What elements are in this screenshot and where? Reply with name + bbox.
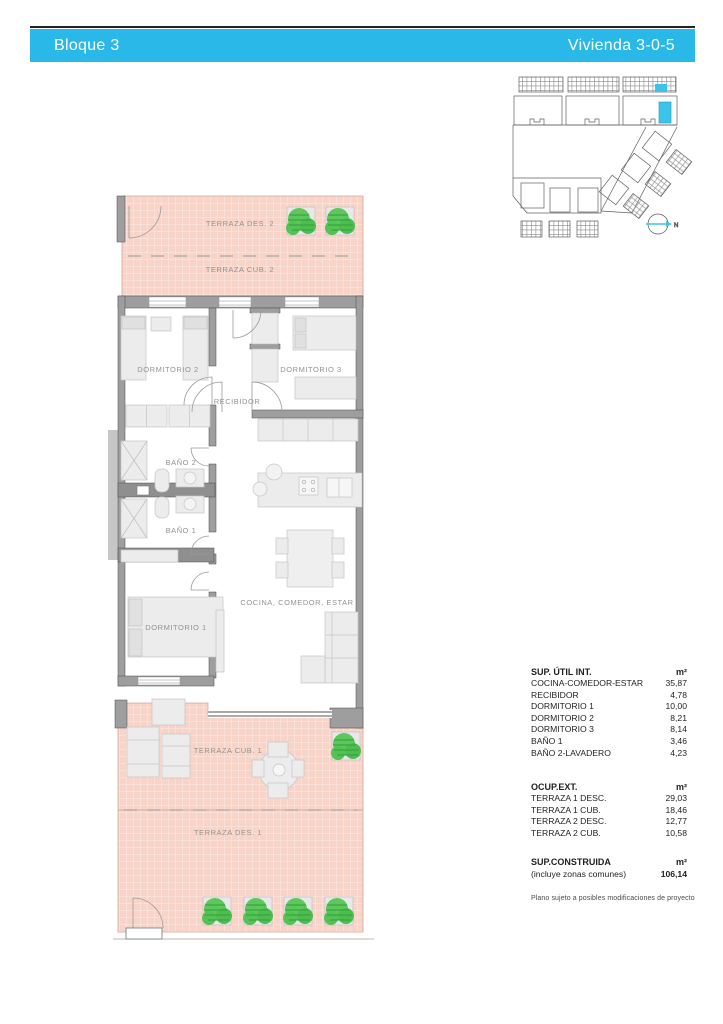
desk-dorm3 bbox=[295, 377, 356, 399]
site-building-row bbox=[513, 96, 677, 125]
plant-icon bbox=[286, 207, 316, 235]
area-label: TERRAZA 2 CUB. bbox=[531, 828, 601, 840]
nightstand bbox=[151, 317, 171, 331]
sink-bano1 bbox=[176, 496, 204, 513]
area-value: 4,78 bbox=[670, 690, 687, 702]
label-terraza-des-2: TERRAZA DES. 2 bbox=[206, 219, 274, 228]
area-label: BAÑO 1 bbox=[531, 736, 563, 748]
label-bano-1: BAÑO 1 bbox=[166, 526, 197, 535]
loungers bbox=[127, 727, 190, 778]
cooktop bbox=[299, 477, 318, 495]
label-dormitorio-3: DORMITORIO 3 bbox=[280, 365, 341, 374]
constructed-subtitle: (incluye zonas comunes) bbox=[531, 868, 626, 880]
area-label: DORMITORIO 1 bbox=[531, 701, 594, 713]
label-terraza-cub-1: TERRAZA CUB. 1 bbox=[194, 746, 263, 755]
area-row: DORMITORIO 28,21 bbox=[531, 713, 687, 725]
closet-dorm1 bbox=[121, 550, 178, 562]
constructed-total: 106,14 bbox=[661, 868, 687, 880]
area-row: TERRAZA 1 DESC.29,03 bbox=[531, 793, 687, 805]
exterior-unit: m² bbox=[676, 781, 687, 793]
interior-section-header: SUP. ÚTIL INT. m² bbox=[531, 666, 687, 678]
ottoman bbox=[301, 656, 325, 683]
site-plan: N bbox=[513, 77, 692, 237]
terrace-chair bbox=[152, 699, 185, 725]
kitchen-appliance bbox=[327, 478, 352, 497]
exterior-section-header: OCUP.EXT. m² bbox=[531, 781, 687, 793]
label-dormitorio-1: DORMITORIO 1 bbox=[145, 623, 206, 632]
area-value: 3,46 bbox=[670, 736, 687, 748]
shower-bano1 bbox=[121, 499, 147, 538]
area-row: TERRAZA 2 DESC.12,77 bbox=[531, 816, 687, 828]
area-value: 4,23 bbox=[670, 748, 687, 760]
apartment-plan: TERRAZA DES. 2 TERRAZA CUB. 2 DORMITORIO… bbox=[108, 196, 374, 939]
label-recibidor: RECIBIDOR bbox=[214, 397, 261, 406]
exterior-title: OCUP.EXT. bbox=[531, 781, 577, 793]
area-value: 8,14 bbox=[670, 724, 687, 736]
site-cluster-bottom-left bbox=[513, 178, 601, 213]
area-row: BAÑO 2-LAVADERO4,23 bbox=[531, 748, 687, 760]
area-label: TERRAZA 2 DESC. bbox=[531, 816, 606, 828]
bed-dorm3 bbox=[293, 316, 356, 350]
plant-icon bbox=[331, 732, 361, 760]
area-label: COCINA-COMEDOR-ESTAR bbox=[531, 678, 643, 690]
door-threshold bbox=[126, 928, 162, 939]
area-table: SUP. ÚTIL INT. m² COCINA-COMEDOR-ESTAR35… bbox=[531, 666, 687, 902]
kitchen-tall-units bbox=[258, 419, 358, 441]
plant-icon bbox=[324, 897, 354, 925]
area-label: DORMITORIO 3 bbox=[531, 724, 594, 736]
highlight-cell bbox=[655, 84, 667, 92]
constructed-title: SUP.CONSTRUIDA bbox=[531, 856, 611, 868]
site-parking-bottom bbox=[521, 221, 598, 237]
area-row: TERRAZA 1 CUB.18,46 bbox=[531, 805, 687, 817]
plant-icon bbox=[325, 207, 355, 235]
area-value: 10,58 bbox=[665, 828, 687, 840]
label-terraza-cub-2: TERRAZA CUB. 2 bbox=[206, 265, 275, 274]
area-value: 18,46 bbox=[665, 805, 687, 817]
area-label: RECIBIDOR bbox=[531, 690, 579, 702]
north-arrow-icon: N bbox=[646, 214, 678, 234]
constructed-section-header: SUP.CONSTRUIDA m² bbox=[531, 856, 687, 868]
area-label: TERRAZA 1 CUB. bbox=[531, 805, 601, 817]
toilet-bano2 bbox=[155, 469, 169, 492]
area-value: 8,21 bbox=[670, 713, 687, 725]
plant-icon bbox=[202, 897, 232, 925]
sliding-door bbox=[208, 710, 332, 718]
area-label: TERRAZA 1 DESC. bbox=[531, 793, 606, 805]
site-parking-top bbox=[519, 77, 676, 92]
area-row: DORMITORIO 110,00 bbox=[531, 701, 687, 713]
tv-sideboard bbox=[216, 610, 224, 672]
constructed-total-row: (incluye zonas comunes) 106,14 bbox=[531, 868, 687, 880]
area-label: BAÑO 2-LAVADERO bbox=[531, 748, 611, 760]
disclaimer-note: Plano sujeto a posibles modificaciones d… bbox=[531, 895, 687, 902]
toilet-bano1 bbox=[155, 497, 169, 518]
area-row: DORMITORIO 38,14 bbox=[531, 724, 687, 736]
label-cocina: COCINA, COMEDOR, ESTAR bbox=[240, 598, 353, 607]
area-row: TERRAZA 2 CUB.10,58 bbox=[531, 828, 687, 840]
constructed-unit: m² bbox=[676, 856, 687, 868]
area-label: DORMITORIO 2 bbox=[531, 713, 594, 725]
interior-unit: m² bbox=[676, 666, 687, 678]
area-value: 29,03 bbox=[665, 793, 687, 805]
sink-bano2 bbox=[176, 469, 204, 487]
area-value: 10,00 bbox=[665, 701, 687, 713]
label-dormitorio-2: DORMITORIO 2 bbox=[137, 365, 198, 374]
area-row: RECIBIDOR4,78 bbox=[531, 690, 687, 702]
label-bano-2: BAÑO 2 bbox=[166, 458, 197, 467]
north-label: N bbox=[674, 223, 678, 229]
area-value: 12,77 bbox=[665, 816, 687, 828]
area-row: COCINA-COMEDOR-ESTAR35,87 bbox=[531, 678, 687, 690]
highlighted-unit bbox=[659, 102, 671, 123]
label-terraza-des-1: TERRAZA DES. 1 bbox=[194, 828, 262, 837]
area-row: BAÑO 13,46 bbox=[531, 736, 687, 748]
plant-icon bbox=[243, 897, 273, 925]
area-value: 35,87 bbox=[665, 678, 687, 690]
plant-icon bbox=[283, 897, 313, 925]
interior-title: SUP. ÚTIL INT. bbox=[531, 666, 592, 678]
shower-bano2 bbox=[121, 441, 147, 480]
